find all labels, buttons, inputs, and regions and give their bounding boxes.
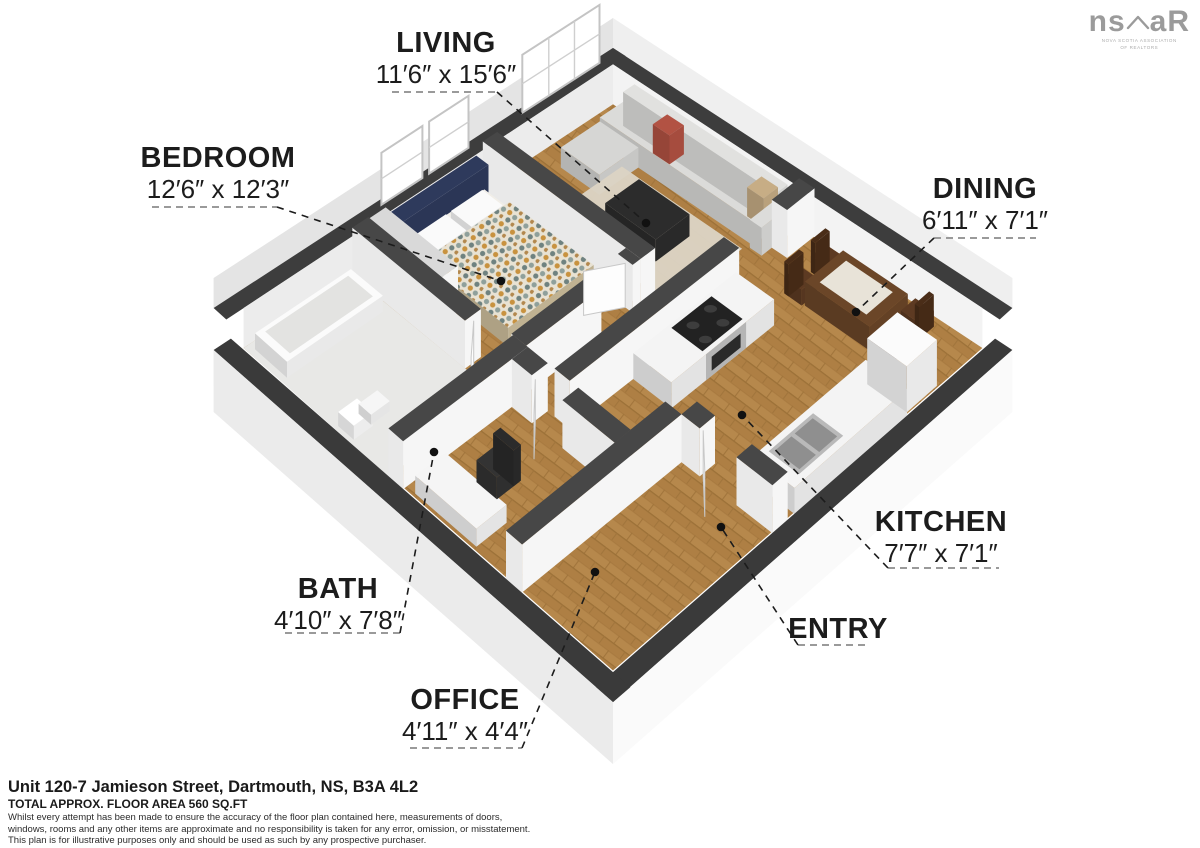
address-line: Unit 120-7 Jamieson Street, Dartmouth, N… bbox=[8, 778, 530, 797]
room-name: LIVING bbox=[376, 28, 516, 59]
label-entry: ENTRY bbox=[788, 614, 888, 645]
room-dims: 6′11″ x 7′1″ bbox=[922, 205, 1048, 235]
room-name: BEDROOM bbox=[141, 143, 296, 174]
label-bedroom: BEDROOM 12′6″ x 12′3″ bbox=[141, 143, 296, 204]
room-dims: 4′11″ x 4′4″ bbox=[402, 716, 528, 746]
logo-text-right: aR bbox=[1150, 8, 1190, 36]
footer-block: Unit 120-7 Jamieson Street, Dartmouth, N… bbox=[8, 778, 530, 847]
label-bath: BATH 4′10″ x 7′8″ bbox=[274, 574, 402, 635]
logo-tagline-1: NOVA SCOTIA ASSOCIATION bbox=[1089, 38, 1190, 43]
room-name: DINING bbox=[922, 174, 1048, 205]
floorplan-page: LIVING 11′6″ x 15′6″ BEDROOM 12′6″ x 12′… bbox=[0, 0, 1200, 848]
room-name: ENTRY bbox=[788, 614, 888, 645]
label-dining: DINING 6′11″ x 7′1″ bbox=[922, 174, 1048, 235]
floorplan-canvas bbox=[0, 0, 1200, 848]
room-name: OFFICE bbox=[402, 685, 528, 716]
room-name: BATH bbox=[274, 574, 402, 605]
room-dims: 12′6″ x 12′3″ bbox=[141, 174, 296, 204]
room-name: KITCHEN bbox=[875, 507, 1007, 538]
disclaimer-line: windows, rooms and any other items are a… bbox=[8, 824, 530, 836]
room-dims: 11′6″ x 15′6″ bbox=[376, 59, 516, 89]
logo-tagline-2: OF REALTORS bbox=[1089, 45, 1190, 50]
room-dims: 4′10″ x 7′8″ bbox=[274, 605, 402, 635]
label-kitchen: KITCHEN 7′7″ x 7′1″ bbox=[875, 507, 1007, 568]
house-icon bbox=[1126, 14, 1150, 36]
floor-area-line: TOTAL APPROX. FLOOR AREA 560 SQ.FT bbox=[8, 797, 530, 812]
label-office: OFFICE 4′11″ x 4′4″ bbox=[402, 685, 528, 746]
bedroom-door bbox=[584, 263, 626, 315]
logo-text-left: ns bbox=[1089, 8, 1126, 36]
disclaimer-line: This plan is for illustrative purposes o… bbox=[8, 835, 530, 847]
nsar-logo: ns aR NOVA SCOTIA ASSOCIATION OF REALTOR… bbox=[1089, 8, 1190, 50]
disclaimer-line: Whilst every attempt has been made to en… bbox=[8, 812, 530, 824]
label-living: LIVING 11′6″ x 15′6″ bbox=[376, 28, 516, 89]
room-dims: 7′7″ x 7′1″ bbox=[875, 538, 1007, 568]
